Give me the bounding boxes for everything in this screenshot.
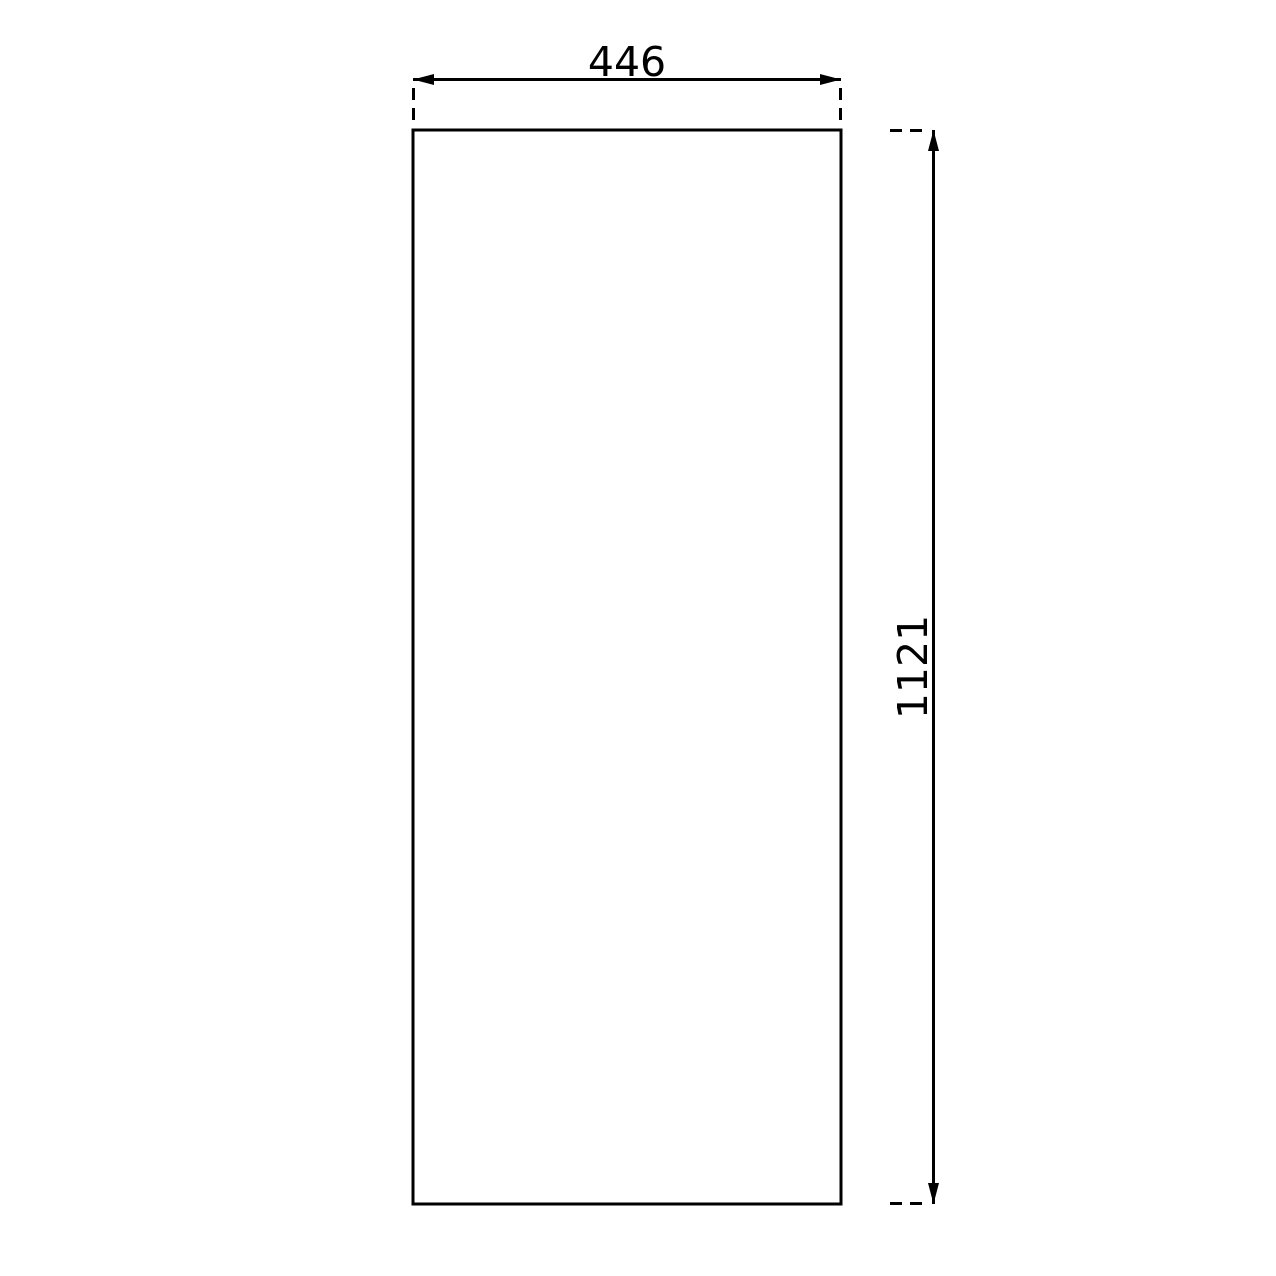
technical-drawing-canvas: 446 1121 — [0, 0, 1276, 1276]
height-dimension: 1121 — [889, 130, 939, 1204]
width-dimension-label: 446 — [588, 38, 666, 86]
width-dim-arrowhead-left-icon — [413, 74, 434, 85]
panel — [413, 130, 841, 1204]
drawing-page: 446 1121 — [0, 0, 1276, 1276]
height-dimension-label: 1121 — [889, 615, 937, 719]
height-dim-arrowhead-top-icon — [928, 130, 939, 151]
panel-outline-rect — [413, 130, 841, 1204]
height-dim-arrowhead-bottom-icon — [928, 1183, 939, 1204]
width-dim-arrowhead-right-icon — [820, 74, 841, 85]
width-dimension: 446 — [413, 38, 841, 127]
